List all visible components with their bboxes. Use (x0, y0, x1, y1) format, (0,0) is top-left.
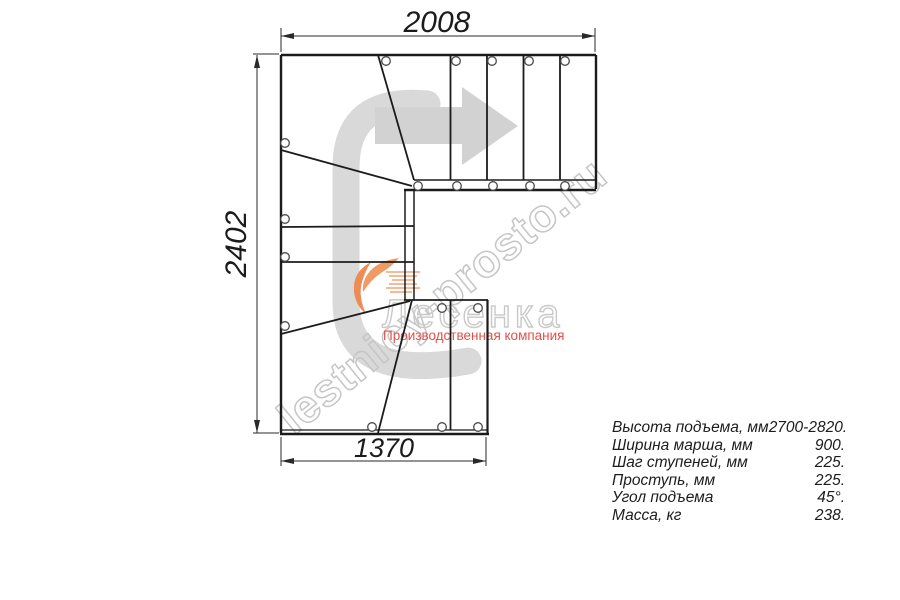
spec-value: 2700-2820. (769, 419, 847, 437)
screw-hole (438, 304, 447, 313)
spec-label: Масса, кг (612, 507, 681, 525)
spec-label: Высота подъема, мм (612, 419, 769, 437)
screw-hole (281, 322, 290, 331)
screw-hole (561, 57, 570, 66)
screw-hole (561, 182, 570, 191)
logo-tagline: Производственная компания (383, 328, 564, 343)
screw-hole (474, 304, 483, 313)
dimension-left (253, 54, 279, 433)
spec-label: Проступь, мм (612, 472, 715, 490)
screw-hole (414, 182, 423, 191)
spec-label: Угол подъема (612, 489, 713, 507)
spec-row: Шаг ступеней, мм 225. (612, 454, 845, 472)
spec-row: Высота подъема, мм 2700-2820. (612, 419, 845, 437)
dimension-left-label: 2402 (220, 210, 253, 278)
spec-label: Ширина марша, мм (612, 437, 753, 455)
screw-hole (474, 423, 483, 432)
spec-row: Угол подъема 45°. (612, 489, 845, 507)
screw-hole (525, 57, 534, 66)
spec-value: 225. (815, 472, 845, 490)
spec-label: Шаг ступеней, мм (612, 454, 748, 472)
spec-value: 45°. (817, 489, 845, 507)
screw-hole (382, 57, 391, 66)
specs-table: Высота подъема, мм 2700-2820. Ширина мар… (612, 419, 845, 525)
spec-row: Проступь, мм 225. (612, 472, 845, 490)
dimension-bottom-label: 1370 (354, 433, 414, 463)
spec-value: 900. (815, 437, 845, 455)
watermark-layer: lestnicy-prosto.ru Лесенка Производствен… (268, 87, 617, 444)
dimension-top-label: 2008 (403, 6, 471, 39)
spec-row: Масса, кг 238. (612, 507, 845, 525)
screw-hole (281, 139, 290, 148)
screw-hole (526, 182, 535, 191)
page: { "dimensions": { "top": "2008", "left":… (0, 0, 900, 600)
screw-hole (368, 423, 377, 432)
spec-row: Ширина марша, мм 900. (612, 437, 845, 455)
screw-hole (452, 57, 461, 66)
screw-hole (281, 215, 290, 224)
spec-value: 225. (815, 454, 845, 472)
screw-hole (488, 57, 497, 66)
screw-hole (438, 423, 447, 432)
spec-value: 238. (815, 507, 845, 525)
screw-hole (453, 182, 462, 191)
screw-hole (281, 253, 290, 262)
screw-hole (489, 182, 498, 191)
